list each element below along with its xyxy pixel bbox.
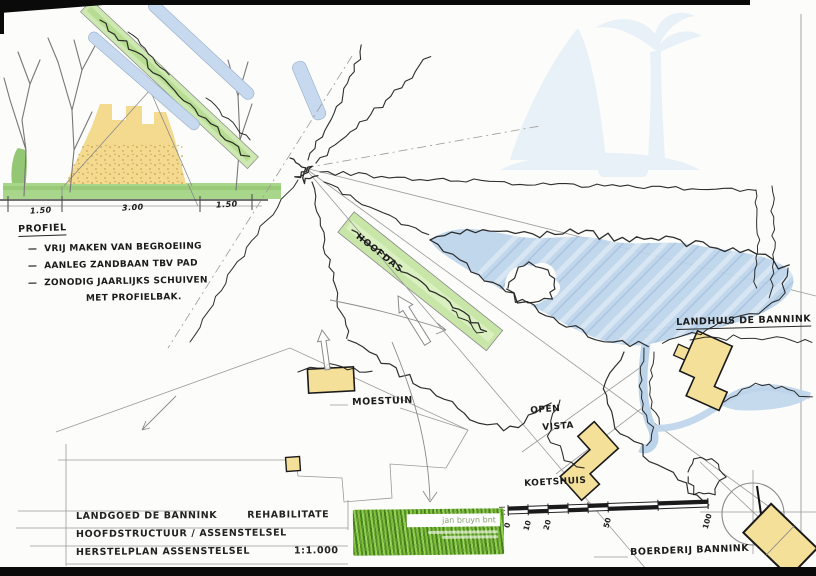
scale-tick-100: 100 [701, 513, 714, 531]
scan-edge-top [0, 0, 750, 5]
scale-tick-20: 20 [542, 519, 554, 532]
long-down-arrow [392, 342, 430, 500]
scale-tick-10: 10 [522, 519, 534, 532]
scale-bar: 0 10 20 50 100 [499, 498, 714, 538]
dimension-middle: 3.00 [122, 202, 144, 212]
scanned-plan-sheet: 0 10 20 50 100 PROFIEL — VRIJ MAKEN VAN … [0, 0, 816, 576]
title-line3-left: HERSTELPLAN ASSENSTELSEL [76, 545, 250, 557]
scale-tick-50: 50 [601, 517, 613, 530]
title-line2: HOOFDSTRUCTUUR / ASSENSTELSEL [76, 527, 287, 539]
logo-name: jan bruyn bnt [407, 513, 500, 527]
title-block: LANDGOED DE BANNINK REHABILITATE HOOFDST… [76, 506, 356, 560]
koetshuis-building [548, 422, 628, 501]
avenue-band-blue-short [291, 59, 328, 122]
logo-address-line [428, 530, 498, 534]
jan-bruyn-bnt-logo: jan bruyn bnt [353, 508, 504, 556]
dimension-right: 1.50 [216, 199, 238, 209]
small-shed [286, 457, 301, 472]
profile-heading: PROFIEL [18, 222, 67, 237]
scan-edge-bottom [0, 567, 816, 576]
plan-drawing: 0 10 20 50 100 [0, 0, 816, 576]
title-line1-right: REHABILITATE [247, 509, 329, 521]
open-vista-label-line1: OPEN [530, 404, 561, 416]
logo-address-line [442, 535, 498, 539]
paper-showthrough-watermark [500, 13, 702, 177]
moestuin-label: MOESTUIN [352, 395, 413, 408]
downleft-arrow [142, 396, 176, 430]
boerderij-building [743, 504, 816, 576]
moestuin-barn [307, 367, 354, 393]
title-scale: 1:1.000 [294, 545, 339, 556]
profile-note-4: MET PROFIELBAK. [86, 292, 182, 304]
title-line1-left: LANDGOED DE BANNINK [76, 509, 217, 521]
scan-edge-left [0, 0, 4, 34]
dimension-left: 1.50 [30, 205, 52, 215]
